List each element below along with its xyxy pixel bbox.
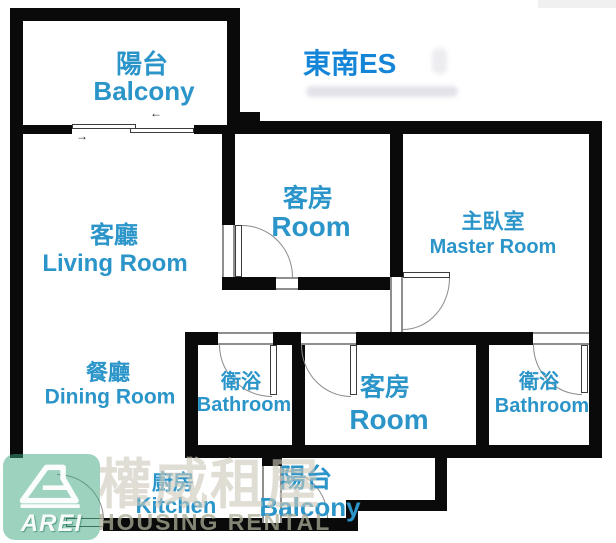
floor-plan: ← → 陽台 Balcony 客廳 Living Room 客房 Room 主臥… — [0, 0, 616, 543]
watermark-brand-zh: 權威租屋 — [98, 458, 322, 512]
door-opening-bath1 — [218, 332, 273, 345]
faint-mark — [432, 48, 447, 74]
label-dining-zh: 餐廳 — [86, 362, 130, 384]
wall-outer-left — [10, 8, 23, 458]
sliding-arrow-right-icon: → — [76, 130, 88, 142]
agency-roof-icon — [15, 460, 89, 508]
door-opening-guest1 — [222, 225, 235, 277]
wall-mid-c — [356, 332, 533, 345]
wall-outer-right — [589, 134, 602, 458]
wall-balcony2-bottom-right — [358, 500, 447, 511]
label-balcony-top-zh: 陽台 — [116, 51, 168, 77]
label-living-zh: 客廳 — [90, 224, 138, 248]
wall-guest1-bottom-b — [298, 277, 390, 290]
label-master-zh: 主臥室 — [462, 212, 525, 233]
label-bath1-en: Bathroom — [197, 395, 291, 415]
wall-balcony-right — [227, 8, 240, 125]
sliding-door-panel-right — [130, 128, 194, 133]
scan-artifact — [538, 0, 616, 8]
door-opening-bath2 — [533, 332, 589, 345]
label-balcony-top-en: Balcony — [93, 78, 194, 104]
door-arc-room2 — [301, 345, 351, 397]
wall-outer-top — [10, 8, 240, 21]
orientation-text: 東南ES — [303, 50, 396, 78]
wall-balcony-bottom-right — [194, 125, 227, 134]
redacted-smudge — [306, 86, 458, 97]
wall-balcony2-right — [435, 458, 447, 511]
agency-logo-text: AREI — [21, 510, 82, 538]
door-leaf-guest1 — [235, 225, 242, 277]
wall-top-right-section — [227, 121, 602, 134]
sliding-arrow-left-icon: ← — [150, 107, 162, 119]
label-bath1-zh: 衛浴 — [221, 372, 261, 392]
label-living-en: Living Room — [42, 252, 187, 276]
door-leaf-bath2 — [581, 345, 588, 393]
label-guest2-zh: 客房 — [360, 376, 410, 401]
watermark-brand-en: HOUSING RENTAL — [98, 511, 331, 534]
door-arc-master — [403, 278, 450, 330]
wall-balcony-bottom-left — [23, 125, 72, 134]
wall-guest1-left — [222, 134, 235, 225]
wall-master-left — [390, 134, 403, 277]
label-dining-en: Dining Room — [45, 387, 176, 408]
wall-room2-bath2-divider — [476, 332, 489, 445]
label-guest2-en: Room — [349, 406, 428, 434]
door-leaf-room2 — [350, 345, 357, 395]
door-opening-master — [390, 277, 403, 332]
wall-guest1-bottom-a — [222, 277, 276, 290]
agency-logo: AREI — [3, 454, 100, 540]
door-opening-room2 — [301, 332, 356, 345]
label-master-en: Master Room — [430, 237, 557, 257]
opening-hallway — [276, 277, 298, 290]
label-bath2-zh: 衛浴 — [519, 372, 559, 392]
label-bath2-en: Bathroom — [495, 396, 589, 416]
label-guest1-zh: 客房 — [283, 187, 333, 212]
label-guest1-en: Room — [271, 213, 350, 241]
